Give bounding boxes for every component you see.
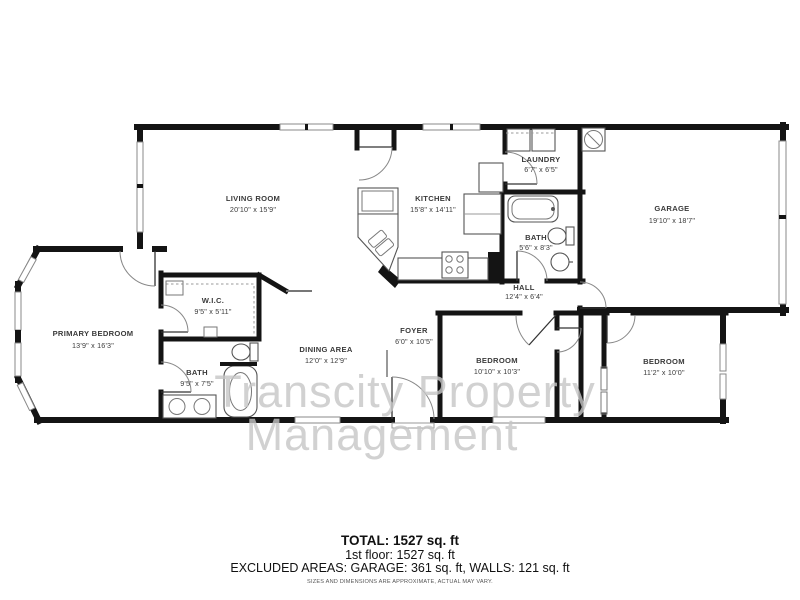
room-dims-dining: 12'0" x 12'9" [305, 356, 347, 365]
dryer [532, 129, 555, 151]
room-label-living: LIVING ROOM [226, 194, 280, 203]
bifold-closet-doors [601, 367, 607, 414]
bath-sink [551, 253, 569, 271]
laundry-fixtures [506, 129, 556, 151]
first-floor-text: 1st floor: 1527 sq. ft [345, 548, 455, 562]
room-label-hall: HALL [513, 283, 535, 292]
room-dims-living: 20'10" x 15'9" [230, 205, 276, 214]
stove [442, 252, 468, 278]
room-dims-primary: 13'9" x 16'3" [72, 341, 114, 350]
room-label-foyer: FOYER [400, 326, 428, 335]
room-label-bath-primary: BATH [186, 368, 208, 377]
door-garage-entry [580, 282, 606, 308]
floorplan-image: LIVING ROOM 20'10" x 15'9" KITCHEN 15'8"… [0, 0, 800, 600]
door-bath-small [517, 251, 547, 281]
window-bay-left-2 [15, 343, 21, 376]
window-bedroom2-right-1 [720, 344, 726, 371]
room-label-bedroom1: BEDROOM [476, 356, 518, 365]
window-bedroom2-right-2 [720, 374, 726, 399]
room-dims-bath-primary: 9'5" x 7'5" [180, 379, 214, 388]
room-dims-kitchen: 15'8" x 14'11" [410, 205, 456, 214]
watermark-line2: Management [246, 409, 519, 460]
room-dims-wic: 9'5" x 5'11" [194, 307, 232, 316]
toilet-tank [250, 343, 258, 361]
door-bedroom1 [516, 315, 556, 345]
window-bay-upper-diag [18, 257, 36, 283]
dishwasher-counter [358, 188, 398, 214]
area-summary: TOTAL: 1527 sq. ft 1st floor: 1527 sq. f… [230, 533, 570, 585]
room-label-dining: DINING AREA [299, 345, 352, 354]
room-label-wic: W.I.C. [202, 296, 224, 305]
door-wic [161, 305, 188, 332]
door-rear-alcove [359, 147, 392, 180]
watermark: Transcity Property Management [214, 366, 595, 460]
toilet-bowl [232, 344, 250, 360]
room-label-bath-small: BATH [525, 233, 547, 242]
vanity [163, 395, 216, 418]
washer [507, 129, 530, 151]
fridge [479, 163, 503, 192]
room-label-laundry: LAUNDRY [522, 155, 561, 164]
room-dims-garage: 19'10" x 18'7" [649, 216, 695, 225]
toilet-tank [566, 227, 574, 245]
toilet-bowl [548, 228, 566, 244]
room-dims-foyer: 6'0" x 10'5" [395, 337, 433, 346]
window-bay-left-1 [15, 292, 21, 330]
room-label-kitchen: KITCHEN [415, 194, 451, 203]
room-label-garage: GARAGE [654, 204, 689, 213]
kitchen-fixtures [358, 163, 503, 280]
door-bedroom1-closet [557, 328, 581, 352]
door-primary-bedroom [120, 251, 155, 286]
room-dims-bedroom2: 11'2" x 10'0" [643, 368, 685, 377]
window-bay-lower-diag [17, 383, 35, 411]
water-heater [582, 128, 605, 151]
room-dims-hall: 12'4" x 6'4" [505, 292, 543, 301]
room-label-bedroom2: BEDROOM [643, 357, 685, 366]
excluded-areas-text: EXCLUDED AREAS: GARAGE: 361 sq. ft, WALL… [230, 561, 570, 575]
room-label-primary: PRIMARY BEDROOM [53, 329, 134, 338]
room-dims-laundry: 6'7" x 6'5" [524, 165, 558, 174]
disclaimer-text: SIZES AND DIMENSIONS ARE APPROXIMATE, AC… [307, 579, 493, 585]
total-area-text: TOTAL: 1527 sq. ft [341, 533, 460, 548]
floorplan-page: LIVING ROOM 20'10" x 15'9" KITCHEN 15'8"… [0, 0, 800, 600]
garage-door-strip [779, 141, 786, 304]
door-bedroom2 [607, 315, 635, 343]
room-dims-bath-small: 5'6" x 8'3" [519, 243, 553, 252]
